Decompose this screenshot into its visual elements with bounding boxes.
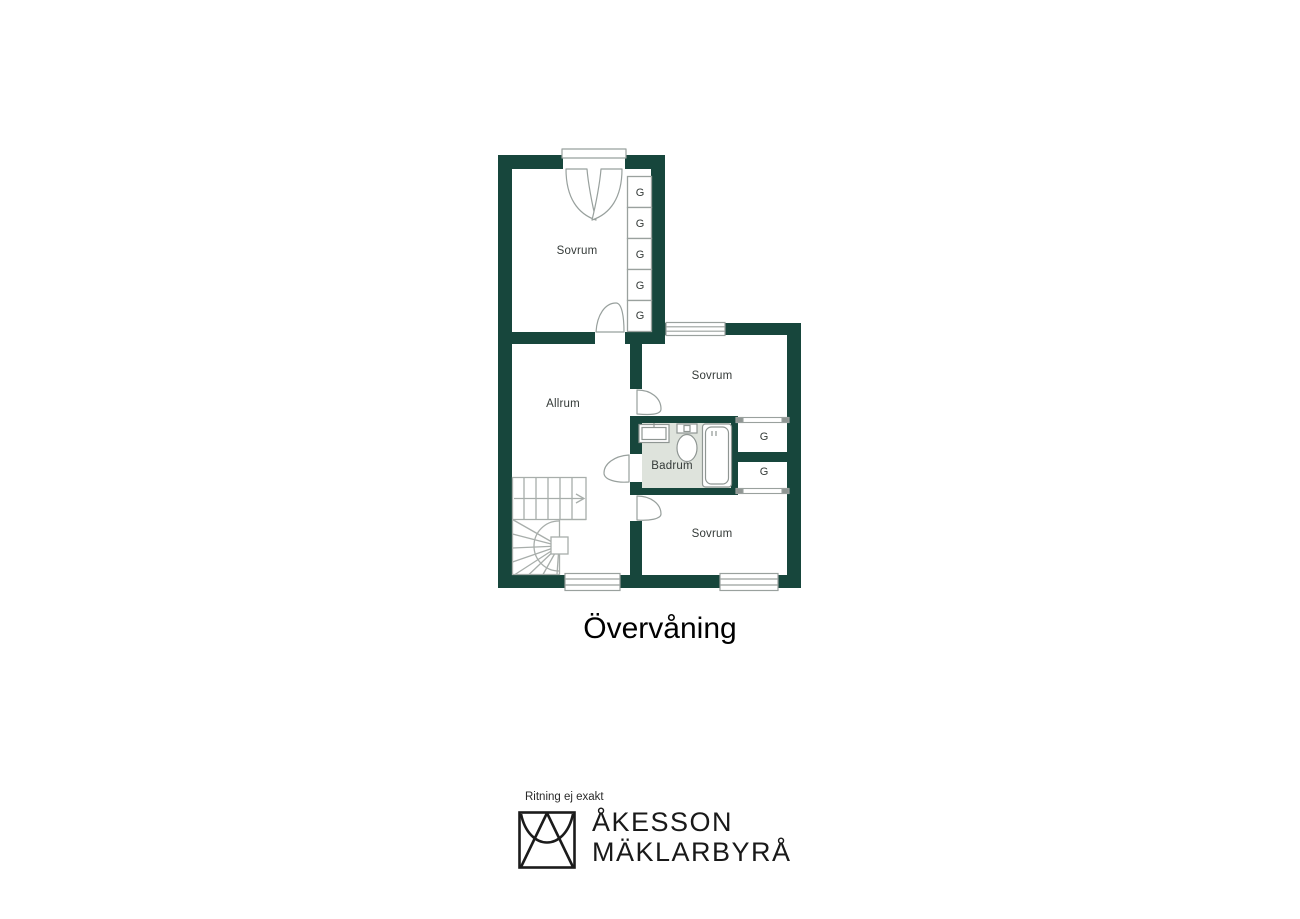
door-sovrum-top [596, 303, 624, 332]
disclaimer-text: Ritning ej exakt [525, 791, 604, 803]
door-sovrum-bottom [637, 496, 661, 520]
wardrobe-label-1: G [636, 187, 645, 199]
toilet [677, 424, 697, 462]
wardrobe-label-3: G [636, 249, 645, 261]
floor-plan-drawing [0, 0, 1300, 919]
window-right-top [666, 323, 725, 336]
floor-title: Övervåning [583, 612, 736, 646]
wardrobe-label-right-2: G [760, 466, 769, 478]
door-sovrum-right [637, 390, 661, 414]
balcony-door [562, 149, 626, 220]
window-bottom-left [565, 574, 620, 591]
wardrobe-label-5: G [636, 310, 645, 322]
wardrobe-label-4: G [636, 280, 645, 292]
room-label-sovrum-right: Sovrum [692, 370, 733, 382]
room-label-badrum: Badrum [651, 460, 692, 472]
bathtub [703, 424, 732, 487]
brand-line-2: MÄKLARBYRÅ [592, 838, 792, 868]
brand-line-1: ÅKESSON [592, 808, 792, 838]
brand-logo-icon [516, 809, 578, 871]
window-bottom-right [720, 574, 778, 591]
floor-plan-page: Sovrum Allrum Sovrum Badrum Sovrum G G G… [0, 0, 1300, 919]
wardrobe-label-right-1: G [760, 431, 769, 443]
room-label-allrum: Allrum [546, 398, 580, 410]
door-badrum [604, 455, 629, 482]
brand-wordmark: ÅKESSON MÄKLARBYRÅ [592, 808, 792, 867]
staircase [513, 478, 587, 575]
room-label-sovrum-top: Sovrum [557, 245, 598, 257]
wardrobe-label-2: G [636, 218, 645, 230]
sink [639, 423, 669, 443]
room-label-sovrum-bottom: Sovrum [692, 528, 733, 540]
